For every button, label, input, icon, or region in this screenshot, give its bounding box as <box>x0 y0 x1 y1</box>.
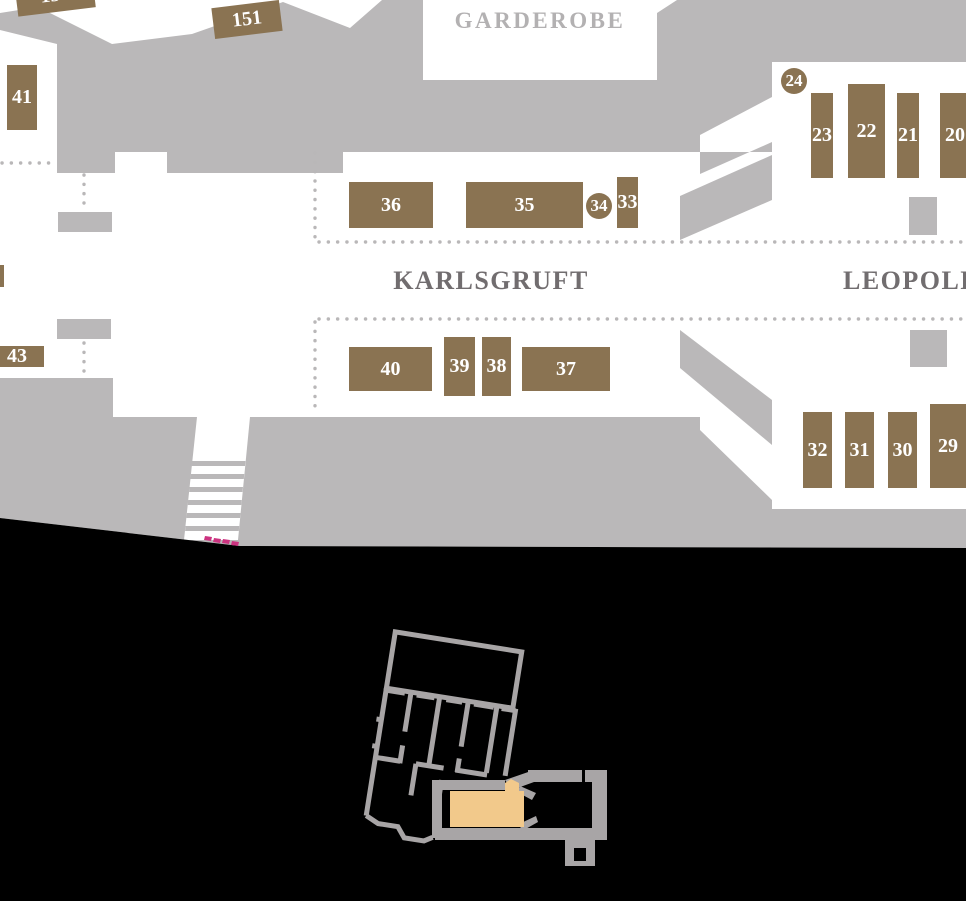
tomb-number: 150 <box>39 0 72 8</box>
tomb-number: 41 <box>12 86 32 109</box>
tomb-number: 22 <box>857 120 877 143</box>
tomb-marker-30[interactable]: 30 <box>888 412 917 488</box>
tomb-marker-29[interactable]: 29 <box>930 404 966 488</box>
tomb-number: 33 <box>618 191 638 214</box>
tomb-number: 20 <box>945 124 965 147</box>
tomb-marker-35[interactable]: 35 <box>466 182 583 228</box>
tomb-marker-22[interactable]: 22 <box>848 84 885 178</box>
room-label-leopold: LEOPOLD <box>843 266 966 296</box>
tomb-marker-31[interactable]: 31 <box>845 412 874 488</box>
room-label-garderobe: GARDEROBE <box>423 8 657 34</box>
wall-block-right-2 <box>910 330 947 367</box>
tomb-number: 39 <box>450 355 470 378</box>
wall-block-right-1 <box>909 197 937 235</box>
tomb-marker-32[interactable]: 32 <box>803 412 832 488</box>
tomb-number: 38 <box>487 355 507 378</box>
tomb-marker-40[interactable]: 40 <box>349 347 432 391</box>
tomb-number: 24 <box>786 71 803 91</box>
tomb-number: 21 <box>898 124 918 147</box>
tomb-number: 40 <box>381 358 401 381</box>
tomb-number: 32 <box>808 439 828 462</box>
tomb-marker-20[interactable]: 20 <box>940 93 966 178</box>
tomb-marker-23[interactable]: 23 <box>811 93 833 178</box>
room-label-karlsgruft: KARLSGRUFT <box>341 266 641 296</box>
tomb-marker-34[interactable]: 34 <box>586 193 612 219</box>
tomb-marker-24[interactable]: 24 <box>781 68 807 94</box>
tomb-number: 30 <box>893 439 913 462</box>
tomb-marker-38[interactable]: 38 <box>482 337 511 396</box>
tomb-number: 29 <box>938 435 958 458</box>
wall-block-left-2 <box>57 319 111 339</box>
tomb-marker-21[interactable]: 21 <box>897 93 919 178</box>
tomb-marker-partial[interactable] <box>0 265 4 287</box>
tomb-number: 23 <box>812 124 832 147</box>
tomb-marker-41[interactable]: 41 <box>7 65 37 130</box>
tomb-number: 35 <box>515 194 535 217</box>
wall-wedge-upper-right <box>680 155 772 240</box>
tomb-marker-43[interactable]: 43 <box>0 346 44 367</box>
tomb-marker-36[interactable]: 36 <box>349 182 433 228</box>
crypt-floor-plan: GARDEROBE KARLSGRUFT LEOPOLD 15015141433… <box>0 0 966 901</box>
tomb-number: 151 <box>231 6 264 32</box>
tomb-marker-33[interactable]: 33 <box>617 177 638 228</box>
tomb-number: 36 <box>381 194 401 217</box>
wall-block-left-1 <box>58 212 112 232</box>
lower-black-region <box>0 518 966 901</box>
tomb-number: 31 <box>850 439 870 462</box>
tomb-marker-39[interactable]: 39 <box>444 337 475 396</box>
tomb-number: 43 <box>7 345 27 368</box>
tomb-marker-37[interactable]: 37 <box>522 347 610 391</box>
tomb-number: 37 <box>556 358 576 381</box>
minimap-wing-niche <box>574 848 586 861</box>
tomb-number: 34 <box>591 196 608 216</box>
